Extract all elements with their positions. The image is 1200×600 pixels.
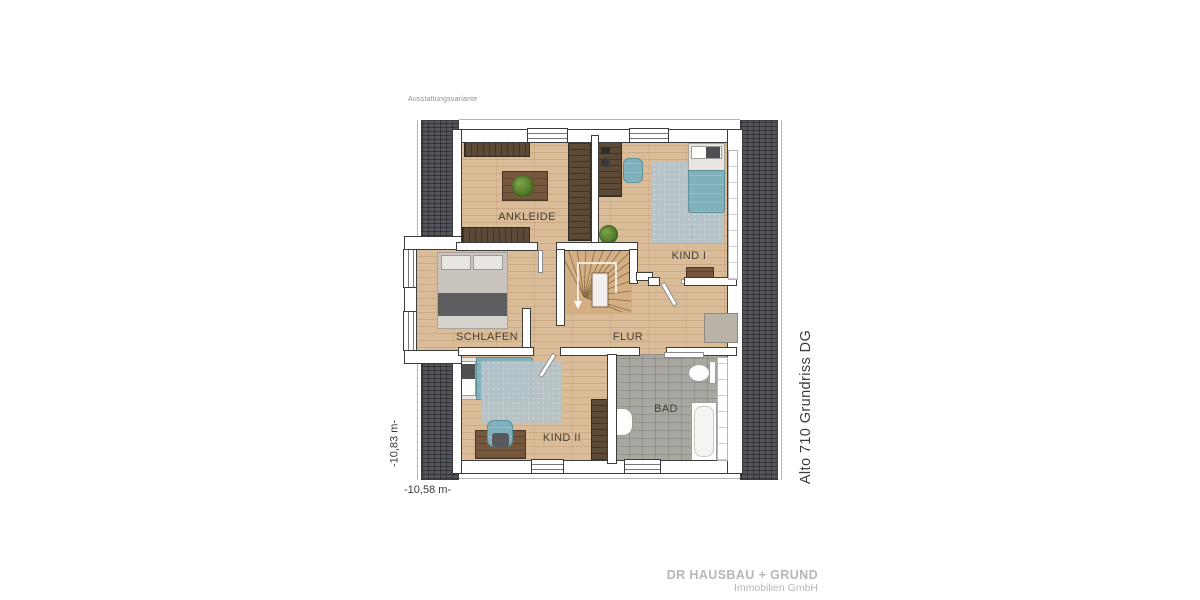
eave-line-top xyxy=(459,119,740,120)
wall-ankleide-kind1 xyxy=(591,135,599,248)
window-bottom-kind2 xyxy=(531,459,564,474)
plan-title: Alto 710 Grundriss DG xyxy=(798,325,814,489)
window-bottom-bad xyxy=(624,459,661,474)
knee-wall-shelf xyxy=(728,150,738,280)
roof-hatch-right xyxy=(740,120,778,480)
desk-item xyxy=(601,147,610,154)
wardrobe-side xyxy=(568,141,591,241)
room-label-kind2: KIND II xyxy=(532,432,592,444)
window-top-kind1 xyxy=(629,128,669,143)
variant-note: Ausstattungsvariante xyxy=(408,96,477,103)
company-name: DR HAUSBAU + GRUND xyxy=(620,569,818,583)
bed-cushion xyxy=(706,147,720,158)
bathtub-inner xyxy=(694,406,714,457)
bay-wall-bottom xyxy=(404,350,462,364)
bed-foot-throw xyxy=(438,316,507,328)
wall-left-lower xyxy=(452,350,462,474)
wall-south-b xyxy=(560,347,640,356)
roof-edge-line xyxy=(781,120,782,480)
room-label-kind1: KIND I xyxy=(659,250,719,262)
wall-kind1-bottom-a xyxy=(648,277,660,286)
wall-ankleide-bottom xyxy=(456,242,538,251)
door-bad xyxy=(664,352,704,358)
rug-kind2 xyxy=(481,361,562,423)
company-subline: Immobilien GmbH xyxy=(620,583,818,594)
room-label-bad: BAD xyxy=(646,403,686,415)
room-label-ankleide: ANKLEIDE xyxy=(487,211,567,223)
wall-left-upper xyxy=(452,129,462,250)
wall-stair-top xyxy=(556,242,638,251)
toilet-tank xyxy=(709,361,716,384)
roof-edge-line xyxy=(417,120,418,237)
wall-stair-left xyxy=(556,249,565,326)
bed-blanket xyxy=(688,170,725,213)
bay-wall-top xyxy=(404,236,462,250)
bed-cushion xyxy=(462,364,475,379)
bed-dark-band xyxy=(438,293,507,316)
room-label-flur: FLUR xyxy=(598,331,658,343)
toilet-icon xyxy=(688,364,710,382)
floorplan-canvas: Ausstattungsvariante -10,83 m- -10,58 m-… xyxy=(0,0,1200,600)
wall-south-a xyxy=(458,347,534,356)
bed-pillow-left xyxy=(441,255,471,270)
chair-kind1 xyxy=(623,158,643,183)
plant-icon xyxy=(512,175,534,197)
stairs xyxy=(564,249,632,313)
dimension-vertical: -10,83 m- xyxy=(389,413,402,475)
sink-icon xyxy=(616,408,633,436)
window-bay-lower xyxy=(403,311,417,351)
chair-seat xyxy=(492,433,509,447)
dimension-horizontal: -10,58 m- xyxy=(404,484,451,496)
company-brand: DR HAUSBAU + GRUND Immobilien GmbH xyxy=(620,569,818,594)
desk-item xyxy=(601,158,610,167)
room-label-schlafen: SCHLAFEN xyxy=(447,331,527,343)
window-top-ankleide xyxy=(527,128,568,143)
roof-edge-line xyxy=(417,363,418,480)
flur-dresser xyxy=(704,313,738,343)
window-bay-upper xyxy=(403,249,417,288)
eave-line-bottom xyxy=(459,478,740,479)
wardrobe-kind2 xyxy=(591,399,608,461)
bed-pillow-right xyxy=(473,255,503,270)
door-ankleide xyxy=(538,250,543,273)
wall-bottom xyxy=(456,460,739,474)
wall-kind2-bad xyxy=(607,354,617,464)
bath-shelves xyxy=(717,357,728,461)
